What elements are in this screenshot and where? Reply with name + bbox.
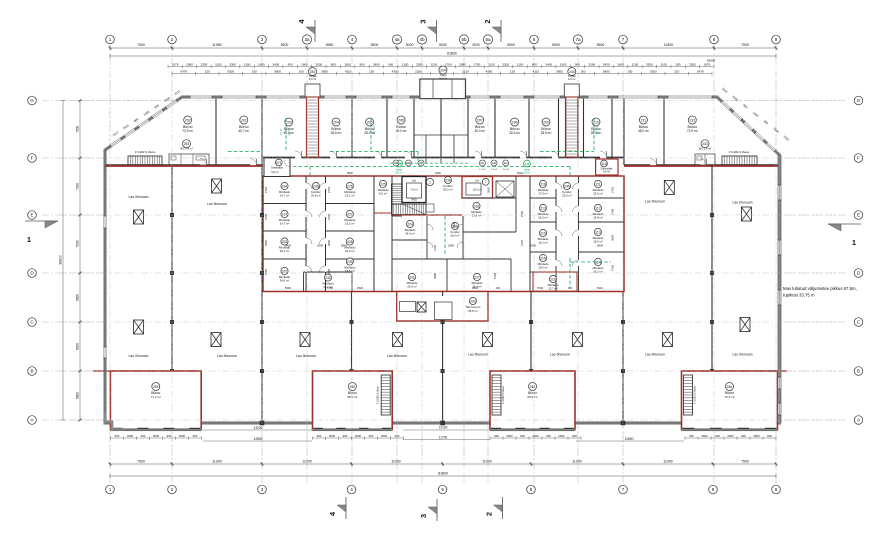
svg-text:1879: 1879	[703, 62, 710, 66]
svg-text:5b: 5b	[461, 37, 467, 42]
svg-text:Lift: Lift	[412, 179, 416, 183]
svg-text:24,6 m²: 24,6 m²	[405, 232, 415, 236]
svg-text:232: 232	[470, 299, 476, 303]
svg-text:208: 208	[512, 120, 518, 124]
svg-text:2500: 2500	[355, 434, 362, 438]
svg-text:24,6 m²: 24,6 m²	[280, 279, 290, 283]
svg-text:11080: 11080	[212, 43, 222, 47]
svg-text:16,0 m²: 16,0 m²	[538, 216, 548, 220]
svg-text:11800: 11800	[664, 43, 674, 47]
svg-text:4726: 4726	[493, 273, 497, 279]
svg-text:2500: 2500	[689, 62, 696, 66]
svg-text:G: G	[857, 98, 861, 103]
svg-text:237: 237	[282, 269, 288, 273]
svg-text:043: 043	[504, 162, 509, 165]
svg-text:280: 280	[676, 62, 681, 66]
svg-text:2718: 2718	[327, 187, 331, 193]
svg-text:2500: 2500	[381, 434, 388, 438]
svg-text:3520: 3520	[264, 240, 268, 246]
svg-text:6,6 m²: 6,6 m²	[523, 172, 530, 175]
svg-text:2718: 2718	[264, 187, 268, 193]
svg-text:205: 205	[367, 120, 373, 124]
svg-text:2708: 2708	[611, 209, 615, 215]
svg-text:900: 900	[359, 62, 364, 66]
svg-text:2630: 2630	[452, 222, 456, 228]
svg-text:20,9 m²: 20,9 m²	[345, 249, 355, 253]
svg-text:2730: 2730	[433, 245, 437, 251]
svg-text:14,7 m²: 14,7 m²	[280, 222, 290, 226]
svg-text:5: 5	[441, 487, 444, 492]
svg-text:1600: 1600	[560, 62, 567, 66]
svg-text:5840: 5840	[347, 171, 353, 175]
svg-text:11000: 11000	[302, 460, 312, 464]
svg-text:071: 071	[276, 161, 282, 165]
svg-text:150: 150	[510, 69, 515, 73]
svg-text:1100: 1100	[431, 62, 438, 66]
svg-text:5580: 5580	[326, 43, 334, 47]
svg-text:Lao õhuruum: Lao õhuruum	[207, 202, 227, 206]
svg-text:5479: 5479	[180, 69, 187, 73]
svg-text:900: 900	[494, 434, 499, 438]
svg-text:13,7 m²: 13,7 m²	[548, 287, 558, 291]
svg-text:224: 224	[407, 222, 413, 226]
svg-text:3400: 3400	[545, 62, 552, 66]
svg-text:243: 243	[702, 142, 708, 146]
svg-text:2520: 2520	[472, 286, 478, 290]
svg-text:28.4 m²: 28.4 m²	[509, 131, 520, 135]
svg-text:246: 246	[727, 385, 733, 389]
svg-text:236: 236	[525, 162, 530, 166]
svg-text:2500: 2500	[127, 434, 134, 438]
svg-text:227: 227	[474, 275, 480, 279]
svg-text:3850: 3850	[321, 69, 328, 73]
svg-text:900: 900	[520, 434, 525, 438]
svg-text:65,9 m²: 65,9 m²	[527, 395, 537, 399]
svg-text:2500: 2500	[316, 62, 323, 66]
svg-text:1100: 1100	[215, 62, 222, 66]
svg-text:81800: 81800	[447, 52, 457, 56]
svg-text:Lift: Lift	[475, 179, 479, 183]
svg-text:Lao õhuruum: Lao õhuruum	[217, 354, 237, 358]
svg-text:E: E	[857, 213, 860, 218]
svg-text:8: 8	[713, 37, 716, 42]
svg-text:5,6 m²: 5,6 m²	[271, 170, 278, 174]
svg-text:245: 245	[564, 184, 570, 188]
svg-text:2290: 2290	[201, 62, 208, 66]
svg-text:23,6 m²: 23,6 m²	[562, 194, 572, 198]
svg-text:041: 041	[480, 162, 485, 165]
svg-text:900: 900	[715, 434, 720, 438]
svg-text:65,9 m²: 65,9 m²	[347, 395, 357, 399]
svg-text:1100: 1100	[402, 62, 409, 66]
svg-text:3000: 3000	[472, 43, 480, 47]
svg-text:137: 137	[282, 212, 288, 216]
svg-text:1: 1	[109, 37, 112, 42]
svg-text:2500: 2500	[701, 434, 708, 438]
svg-text:17 m: 17 m	[279, 128, 283, 135]
svg-text:2500: 2500	[589, 62, 596, 66]
svg-text:900: 900	[317, 434, 322, 438]
svg-text:G: G	[30, 98, 34, 103]
svg-text:2: 2	[171, 487, 174, 492]
svg-text:216: 216	[474, 204, 480, 208]
svg-text:Trepp: Trepp	[439, 73, 447, 77]
svg-text:2080: 2080	[459, 62, 466, 66]
svg-text:3300: 3300	[646, 62, 653, 66]
svg-text:900: 900	[575, 62, 580, 66]
svg-text:19,5 m²: 19,5 m²	[593, 240, 603, 244]
svg-text:7500: 7500	[741, 460, 749, 464]
svg-text:45.0 m²: 45.0 m²	[638, 129, 649, 133]
svg-text:2080: 2080	[448, 244, 454, 248]
svg-text:11000: 11000	[212, 460, 222, 464]
svg-text:5700: 5700	[537, 286, 543, 290]
svg-text:E: E	[30, 213, 33, 218]
svg-text:113: 113	[595, 230, 601, 234]
svg-text:234: 234	[282, 184, 288, 188]
svg-text:150: 150	[369, 69, 374, 73]
svg-text:204: 204	[333, 120, 339, 124]
svg-text:042: 042	[492, 162, 497, 165]
svg-text:10,3 m²: 10,3 m²	[473, 188, 482, 192]
svg-text:1100: 1100	[632, 62, 639, 66]
svg-text:3: 3	[419, 514, 428, 518]
svg-text:7,3 m²: 7,3 m²	[410, 188, 417, 192]
svg-text:3420: 3420	[411, 198, 417, 202]
svg-text:1: 1	[852, 238, 856, 247]
svg-text:2500: 2500	[329, 434, 336, 438]
svg-text:6: 6	[533, 37, 536, 42]
svg-text:6800: 6800	[76, 392, 80, 399]
svg-text:203: 203	[286, 120, 292, 124]
svg-text:1,2 m²: 1,2 m²	[479, 168, 485, 171]
svg-text:16,0 m²: 16,0 m²	[450, 234, 460, 238]
svg-text:20,8 m²: 20,8 m²	[311, 194, 321, 198]
svg-text:73.9 m²: 73.9 m²	[687, 129, 698, 133]
svg-text:2000: 2000	[317, 244, 323, 248]
svg-text:900: 900	[288, 62, 293, 66]
svg-text:116: 116	[601, 162, 607, 166]
svg-text:7: 7	[622, 487, 625, 492]
svg-text:5500: 5500	[507, 43, 515, 47]
svg-text:5000: 5000	[439, 43, 447, 47]
svg-text:211: 211	[641, 118, 647, 122]
svg-text:4: 4	[351, 37, 354, 42]
svg-text:253: 253	[184, 142, 190, 146]
svg-text:2500: 2500	[153, 434, 160, 438]
svg-text:213: 213	[540, 206, 546, 210]
svg-text:8000: 8000	[76, 343, 80, 350]
svg-text:2500: 2500	[753, 434, 760, 438]
svg-text:900: 900	[115, 434, 120, 438]
svg-text:5500: 5500	[281, 43, 289, 47]
svg-text:2,2 m²: 2,2 m²	[503, 168, 509, 171]
svg-text:4380: 4380	[486, 69, 493, 73]
svg-text:160: 160	[299, 69, 304, 73]
svg-text:11000: 11000	[663, 460, 673, 464]
svg-text:5800: 5800	[603, 69, 610, 73]
svg-text:12100: 12100	[439, 426, 448, 430]
svg-text:3020: 3020	[487, 187, 491, 193]
svg-text:900: 900	[546, 434, 551, 438]
svg-text:218: 218	[540, 182, 546, 186]
svg-text:Lao õhuruum: Lao õhuruum	[129, 354, 149, 358]
svg-text:212: 212	[689, 118, 695, 122]
svg-text:6,3 m²: 6,3 m²	[439, 77, 446, 81]
svg-text:30,7 m: 30,7 m	[595, 125, 599, 135]
svg-text:17x182,3 tõusu: 17x182,3 tõusu	[729, 150, 750, 154]
svg-text:26,5 m²: 26,5 m²	[407, 285, 417, 289]
svg-text:160: 160	[496, 286, 501, 290]
svg-text:36800: 36800	[59, 255, 63, 265]
svg-text:2500: 2500	[727, 434, 734, 438]
svg-text:14,7 m²: 14,7 m²	[280, 194, 290, 198]
svg-text:12800: 12800	[254, 437, 263, 441]
svg-text:900: 900	[167, 434, 172, 438]
svg-text:2,2 m²: 2,2 m²	[491, 168, 497, 171]
svg-text:11000: 11000	[391, 460, 401, 464]
svg-text:4726: 4726	[611, 265, 615, 271]
svg-text:WC 4,6 m²: WC 4,6 m²	[180, 147, 193, 151]
svg-text:23,9 m²: 23,9 m²	[472, 214, 482, 218]
svg-text:Lao õhuruum: Lao õhuruum	[645, 200, 665, 204]
svg-text:31 m: 31 m	[287, 128, 291, 135]
svg-text:1600: 1600	[301, 62, 308, 66]
svg-text:1100: 1100	[488, 62, 495, 66]
svg-text:3808: 3808	[433, 273, 437, 279]
svg-text:900: 900	[193, 434, 198, 438]
svg-text:216: 216	[550, 277, 556, 281]
svg-text:4110: 4110	[345, 69, 352, 73]
svg-text:11000: 11000	[482, 460, 492, 464]
svg-text:2728: 2728	[327, 214, 331, 220]
svg-text:5300: 5300	[650, 69, 657, 73]
svg-text:45.0 m²: 45.0 m²	[396, 129, 407, 133]
svg-text:1790: 1790	[474, 62, 481, 66]
svg-text:900: 900	[369, 434, 374, 438]
svg-text:19,5 m²: 19,5 m²	[345, 269, 355, 273]
svg-text:6,3 m²: 6,3 m²	[309, 77, 316, 81]
svg-text:7500: 7500	[137, 460, 145, 464]
svg-text:5420: 5420	[285, 244, 291, 248]
svg-text:19,0 m²: 19,0 m²	[538, 266, 548, 270]
svg-text:250: 250	[350, 385, 356, 389]
svg-text:4728: 4728	[264, 269, 268, 275]
svg-text:WC 1,4 m²: WC 1,4 m²	[699, 147, 712, 151]
svg-text:234: 234	[440, 68, 446, 72]
svg-text:7000: 7000	[76, 240, 80, 247]
svg-text:800: 800	[532, 62, 537, 66]
svg-text:235: 235	[313, 184, 319, 188]
svg-text:11000: 11000	[572, 460, 582, 464]
svg-text:3000: 3000	[406, 43, 414, 47]
svg-text:2500: 2500	[506, 434, 513, 438]
svg-text:F: F	[857, 156, 860, 161]
svg-text:600: 600	[388, 62, 393, 66]
svg-text:112: 112	[595, 206, 601, 210]
svg-text:900: 900	[141, 434, 146, 438]
svg-text:5500: 5500	[597, 43, 605, 47]
svg-text:2500: 2500	[179, 434, 186, 438]
svg-text:9,9 m²: 9,9 m²	[603, 170, 610, 174]
svg-text:900: 900	[689, 434, 694, 438]
svg-text:219: 219	[540, 231, 546, 235]
svg-text:90,2 m²: 90,2 m²	[443, 188, 453, 192]
svg-text:3: 3	[261, 37, 264, 42]
svg-text:1100: 1100	[517, 62, 524, 66]
svg-text:2728: 2728	[264, 214, 268, 220]
svg-text:2: 2	[483, 19, 492, 23]
svg-text:12800: 12800	[625, 437, 634, 441]
svg-text:2500: 2500	[532, 434, 539, 438]
svg-text:1: 1	[27, 235, 31, 244]
svg-text:6800: 6800	[76, 294, 80, 301]
svg-text:2730: 2730	[520, 211, 524, 217]
svg-text:tupikust 33,75 m: tupikust 33,75 m	[783, 293, 815, 298]
svg-text:1790: 1790	[445, 62, 452, 66]
svg-text:36,7 m: 36,7 m	[372, 125, 376, 135]
svg-text:233: 233	[282, 240, 288, 244]
svg-text:Lao õhuruum: Lao õhuruum	[733, 200, 753, 204]
svg-text:73.9 m²: 73.9 m²	[182, 129, 193, 133]
svg-text:3520: 3520	[327, 240, 331, 246]
svg-text:207: 207	[477, 118, 483, 122]
svg-text:17,8 m²: 17,8 m²	[538, 192, 548, 196]
svg-text:Lao õhuruum: Lao õhuruum	[645, 353, 665, 357]
svg-text:45.7 m²: 45.7 m²	[238, 129, 249, 133]
svg-text:1600: 1600	[617, 62, 624, 66]
svg-text:111: 111	[595, 182, 600, 186]
svg-text:1: 1	[429, 180, 431, 184]
svg-text:3: 3	[261, 487, 264, 492]
svg-text:900: 900	[395, 434, 400, 438]
svg-text:2200: 2200	[502, 62, 509, 66]
svg-text:14,9 m²: 14,9 m²	[593, 216, 603, 220]
svg-text:B: B	[857, 369, 860, 374]
svg-text:81800: 81800	[438, 472, 448, 476]
svg-text:4300: 4300	[392, 69, 399, 73]
svg-text:13200: 13200	[254, 426, 263, 430]
svg-text:Trepik: Trepik	[309, 74, 317, 78]
svg-text:15,2 m²: 15,2 m²	[345, 222, 355, 226]
svg-text:900: 900	[741, 434, 746, 438]
svg-text:77,2 m²: 77,2 m²	[151, 395, 161, 399]
svg-text:5479: 5479	[697, 69, 704, 73]
svg-text:209: 209	[543, 120, 549, 124]
svg-text:8,6 m²: 8,6 m²	[379, 192, 387, 196]
svg-text:7900: 7900	[76, 183, 80, 190]
svg-text:3a: 3a	[304, 37, 310, 42]
svg-text:Lao õhuruum: Lao õhuruum	[733, 353, 753, 357]
svg-text:2520: 2520	[357, 286, 363, 290]
svg-text:5040: 5040	[530, 244, 536, 248]
svg-text:2720: 2720	[520, 240, 524, 246]
svg-text:75,3 m²: 75,3 m²	[724, 395, 734, 399]
svg-text:100: 100	[252, 69, 257, 73]
svg-text:45.0 m²: 45.0 m²	[474, 129, 485, 133]
svg-text:4a: 4a	[394, 37, 400, 42]
svg-text:1979: 1979	[172, 62, 179, 66]
svg-text:5040: 5040	[517, 171, 523, 175]
svg-text:6,3 m²: 6,3 m²	[568, 77, 575, 81]
svg-text:17x182,3 tõusu: 17x182,3 tõusu	[376, 386, 380, 404]
svg-text:900: 900	[767, 434, 772, 438]
svg-text:3430: 3430	[603, 62, 610, 66]
svg-text:2718: 2718	[611, 187, 615, 193]
svg-text:3400: 3400	[373, 62, 380, 66]
svg-text:9: 9	[775, 487, 778, 492]
svg-text:17x182,3 tõusu: 17x182,3 tõusu	[135, 150, 156, 154]
svg-text:206: 206	[398, 118, 404, 122]
svg-text:045: 045	[394, 162, 399, 165]
svg-text:5300: 5300	[227, 69, 234, 73]
svg-text:251: 251	[153, 385, 159, 389]
svg-text:11700: 11700	[439, 436, 448, 440]
svg-text:5210: 5210	[597, 286, 603, 290]
svg-text:4110: 4110	[533, 69, 540, 73]
svg-text:5500: 5500	[371, 43, 379, 47]
svg-text:160: 160	[580, 69, 585, 73]
svg-text:2: 2	[171, 37, 174, 42]
svg-text:5a: 5a	[485, 37, 491, 42]
svg-text:239: 239	[445, 178, 451, 182]
svg-text:17x182,3 tõusu: 17x182,3 tõusu	[501, 386, 505, 404]
svg-text:7: 7	[622, 37, 625, 42]
svg-text:3: 3	[419, 19, 428, 23]
svg-text:225: 225	[380, 182, 386, 186]
svg-text:16,2 m²: 16,2 m²	[538, 241, 548, 245]
svg-text:7500: 7500	[137, 43, 145, 47]
svg-text:201: 201	[241, 118, 247, 122]
svg-text:2210: 2210	[462, 69, 469, 73]
svg-text:28.5 m²: 28.5 m²	[331, 131, 342, 135]
svg-text:7000: 7000	[76, 125, 80, 132]
svg-text:15,0 m²: 15,0 m²	[593, 192, 603, 196]
svg-text:8: 8	[712, 487, 715, 492]
svg-text:7500: 7500	[741, 43, 749, 47]
svg-text:230: 230	[325, 276, 331, 280]
svg-text:5500: 5500	[552, 43, 560, 47]
svg-text:7: 7	[485, 180, 487, 184]
svg-text:35,6 m²: 35,6 m²	[468, 309, 478, 313]
svg-text:6,6 m²: 6,6 m²	[395, 172, 402, 175]
svg-text:17x182,3 tõusu: 17x182,3 tõusu	[693, 386, 697, 404]
svg-text:800: 800	[331, 62, 336, 66]
svg-text:B: B	[30, 369, 33, 374]
svg-text:900: 900	[572, 434, 577, 438]
svg-text:Lao õhuruum: Lao õhuruum	[550, 353, 570, 357]
svg-text:3430: 3430	[435, 171, 441, 175]
svg-text:248: 248	[530, 385, 536, 389]
svg-text:100: 100	[627, 69, 632, 73]
svg-text:Trepik: Trepik	[568, 74, 576, 78]
svg-text:5800: 5800	[274, 69, 281, 73]
svg-text:4b: 4b	[419, 37, 425, 42]
svg-text:2580: 2580	[186, 62, 193, 66]
svg-text:9: 9	[775, 37, 778, 42]
svg-text:047: 047	[419, 162, 424, 165]
svg-text:2200: 2200	[415, 69, 422, 73]
svg-text:16,1 m²: 16,1 m²	[345, 194, 355, 198]
svg-text:3850: 3850	[556, 69, 563, 73]
svg-text:3300: 3300	[229, 62, 236, 66]
svg-text:5830: 5830	[597, 244, 603, 248]
svg-text:7a: 7a	[575, 37, 581, 42]
svg-text:2: 2	[485, 512, 494, 516]
svg-text:231: 231	[409, 275, 415, 279]
svg-text:220: 220	[205, 69, 210, 73]
svg-text:5940: 5940	[341, 244, 347, 248]
